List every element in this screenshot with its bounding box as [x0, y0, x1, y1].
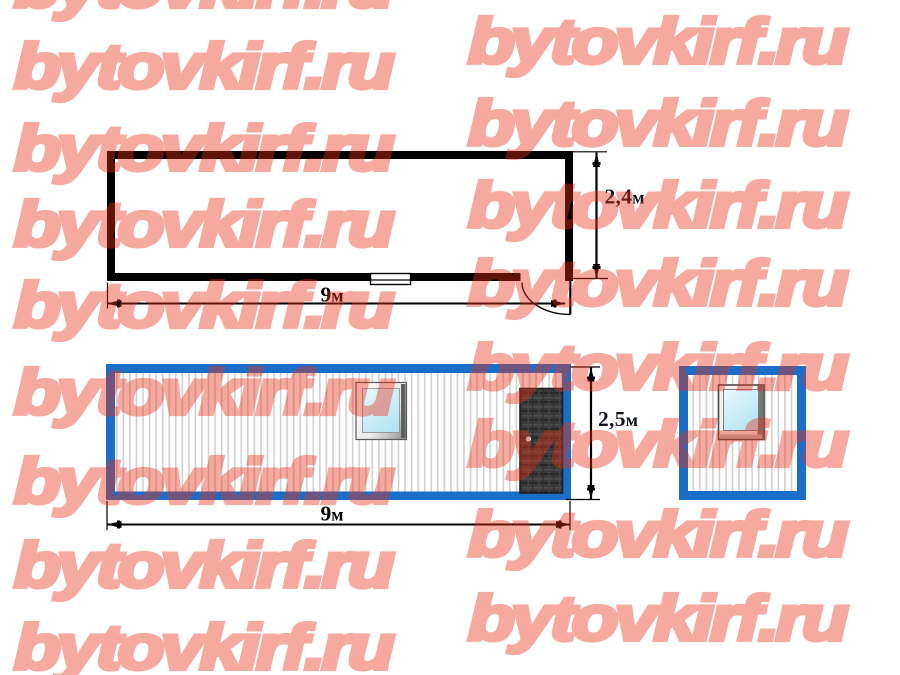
- svg-text:bytovkirf.ru: bytovkirf.ru: [14, 190, 394, 260]
- svg-text:bytovkirf.ru: bytovkirf.ru: [468, 249, 848, 319]
- svg-text:bytovkirf.ru: bytovkirf.ru: [14, 358, 394, 428]
- svg-text:bytovkirf.ru: bytovkirf.ru: [14, 114, 394, 184]
- svg-text:bytovkirf.ru: bytovkirf.ru: [468, 171, 848, 241]
- svg-text:bytovkirf.ru: bytovkirf.ru: [468, 584, 848, 654]
- svg-text:bytovkirf.ru: bytovkirf.ru: [14, 0, 394, 21]
- svg-text:bytovkirf.ru: bytovkirf.ru: [468, 89, 848, 159]
- svg-text:bytovkirf.ru: bytovkirf.ru: [14, 447, 394, 517]
- svg-text:bytovkirf.ru: bytovkirf.ru: [468, 500, 848, 570]
- svg-text:bytovkirf.ru: bytovkirf.ru: [468, 333, 848, 403]
- svg-text:bytovkirf.ru: bytovkirf.ru: [14, 531, 394, 601]
- svg-text:bytovkirf.ru: bytovkirf.ru: [14, 613, 394, 675]
- svg-text:bytovkirf.ru: bytovkirf.ru: [468, 410, 848, 480]
- svg-text:bytovkirf.ru: bytovkirf.ru: [14, 32, 394, 102]
- svg-text:bytovkirf.ru: bytovkirf.ru: [14, 271, 394, 341]
- svg-text:bytovkirf.ru: bytovkirf.ru: [468, 7, 848, 77]
